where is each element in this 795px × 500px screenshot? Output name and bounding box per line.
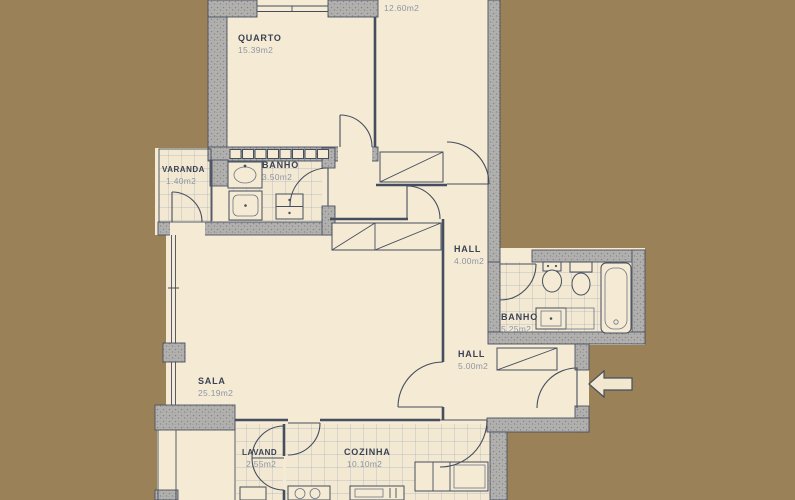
area-banho-1: 3.50m2 <box>262 172 292 182</box>
shower-drain <box>244 204 247 207</box>
lavand-machine <box>240 487 266 500</box>
area-quarto: 15.39m2 <box>238 45 273 55</box>
wall-top-mid <box>328 0 378 17</box>
wall-right-upper <box>488 0 500 262</box>
floor-plan-drawing: QUARTO 15.39m2 12.60m2 VARANDA 1.40m2 BA… <box>0 0 795 500</box>
label-hall-1: HALL <box>454 244 481 254</box>
kitchen-sink-unit <box>288 486 330 500</box>
area-hall-1: 4.00m2 <box>454 256 484 266</box>
area-lavand: 2.55m2 <box>246 459 276 469</box>
wall-hall2-bottom <box>487 418 589 432</box>
bidet <box>543 270 562 292</box>
area-hall-2: 5.00m2 <box>458 361 488 371</box>
floor-plan-stage: QUARTO 15.39m2 12.60m2 VARANDA 1.40m2 BA… <box>0 0 795 500</box>
wall-quarto-left <box>208 0 227 160</box>
wardrobe-sala <box>332 223 441 250</box>
area-cozinha: 10.10m2 <box>347 459 382 469</box>
wall-varanda-pier <box>210 160 228 186</box>
wall-cozinha-right <box>490 432 507 500</box>
label-hall-2: HALL <box>458 349 485 359</box>
label-banho-1: BANHO <box>262 160 299 170</box>
label-quarto: QUARTO <box>238 33 282 43</box>
area-varanda: 1.40m2 <box>166 176 196 186</box>
area-quarto-2: 12.60m2 <box>384 3 419 13</box>
wall-banho2-top <box>532 250 645 262</box>
wall-window-pier <box>163 343 185 362</box>
tap <box>244 165 247 168</box>
wall-banho2-right <box>632 250 645 344</box>
label-sala: SALA <box>198 376 226 386</box>
label-lavand: LAVAND <box>242 448 277 457</box>
label-cozinha: COZINHA <box>344 447 391 457</box>
toilet-tank <box>570 262 592 272</box>
wall-top-left <box>208 0 257 17</box>
kitchen-counter-right <box>415 462 488 491</box>
wall-entrance-pier-top <box>575 344 589 370</box>
wall-banho2-left <box>488 262 500 332</box>
label-banho-2: BANHO <box>501 312 538 322</box>
area-banho-2: 5.25m2 <box>501 324 531 334</box>
toilet <box>572 273 590 295</box>
wall-sala-bottom-left <box>155 405 235 430</box>
area-sala: 25.19m2 <box>198 388 233 398</box>
label-varanda: VARANDA <box>162 165 205 174</box>
